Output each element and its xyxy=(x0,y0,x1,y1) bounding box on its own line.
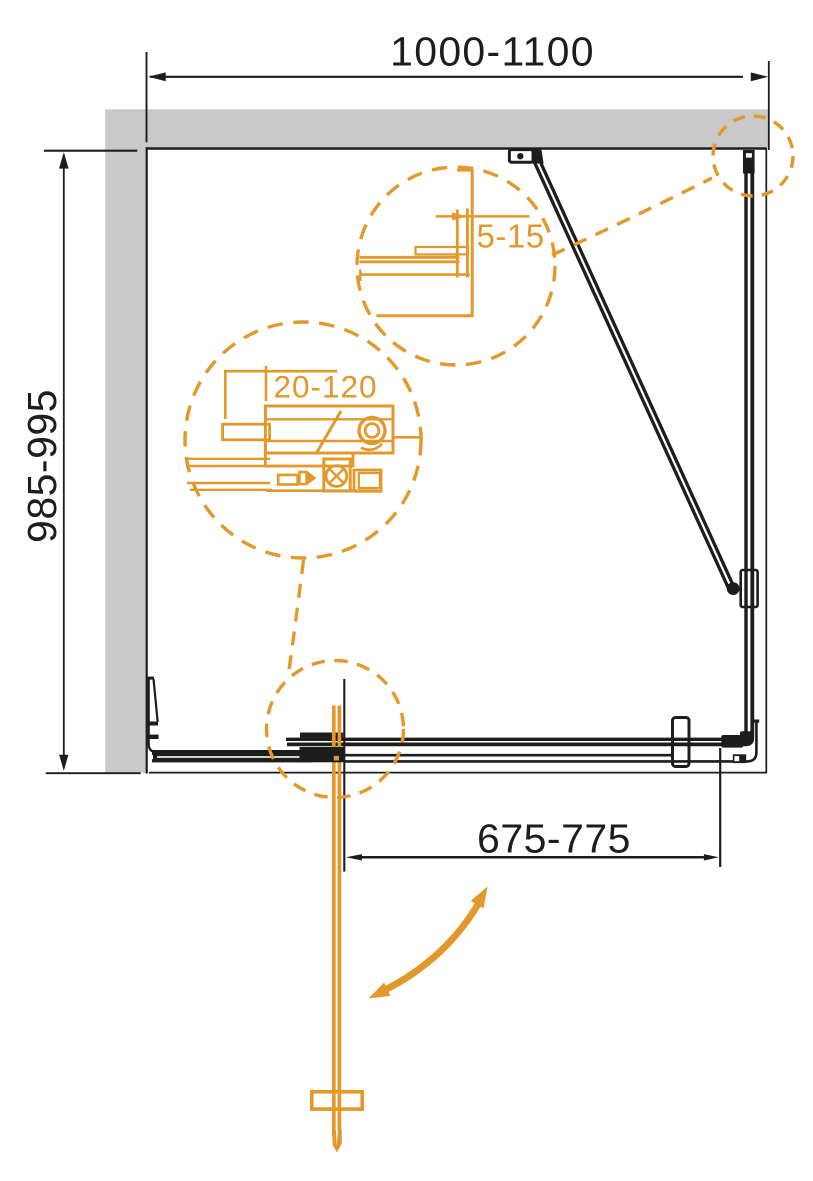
svg-text:1000-1100: 1000-1100 xyxy=(390,29,595,75)
svg-text:20-120: 20-120 xyxy=(273,369,377,405)
svg-text:675-775: 675-775 xyxy=(477,816,631,862)
svg-text:5-15: 5-15 xyxy=(477,218,545,255)
svg-text:985-995: 985-995 xyxy=(19,389,65,543)
